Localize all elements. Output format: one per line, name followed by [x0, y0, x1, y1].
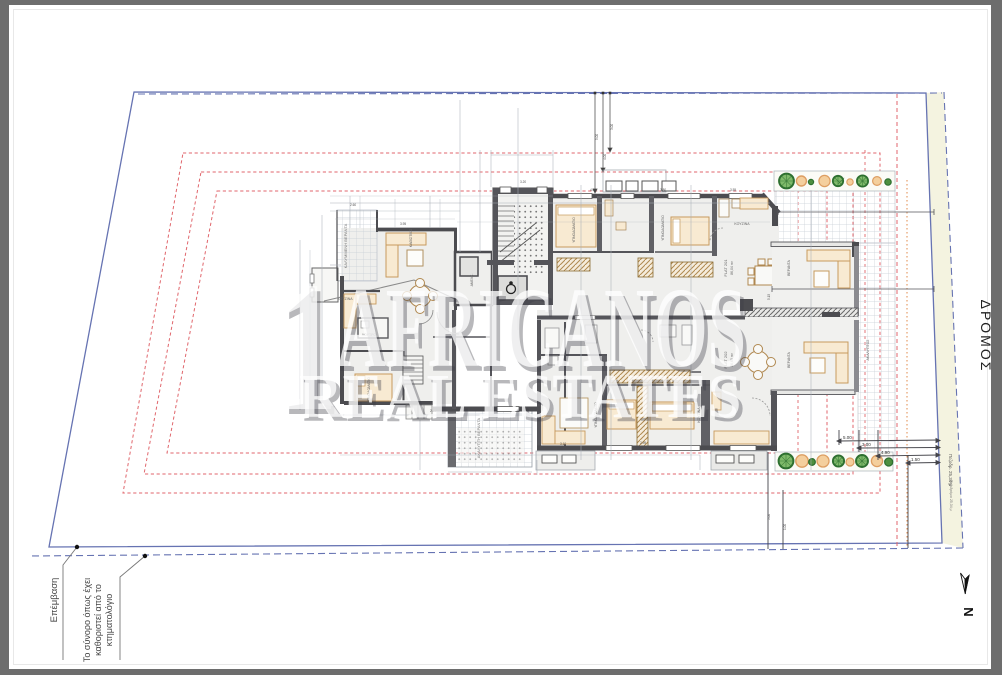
svg-text:REAL ESTATES: REAL ESTATES	[299, 363, 741, 431]
svg-text:3.20: 3.20	[520, 180, 526, 184]
svg-text:3.80: 3.80	[660, 188, 666, 192]
svg-text:5.15: 5.15	[767, 294, 771, 300]
svg-text:ΚΟΥΖΙΝΑ: ΚΟΥΖΙΝΑ	[734, 222, 750, 226]
svg-text:ΑΚΑΛΥΠΤΟΣ: ΑΚΑΛΥΠΤΟΣ	[866, 339, 870, 361]
svg-text:5.00: 5.00	[843, 435, 852, 440]
svg-text:καθοριστεί από το: καθοριστεί από το	[93, 584, 103, 656]
svg-text:3.10: 3.10	[560, 442, 566, 446]
svg-text:κτηματολόγιο: κτηματολόγιο	[104, 594, 114, 647]
svg-text:Πεζοδρ. 25,34 μ: Πεζοδρ. 25,34 μ	[948, 454, 953, 487]
svg-text:4.90: 4.90	[881, 450, 890, 455]
svg-text:1.50: 1.50	[911, 457, 920, 462]
svg-text:Το σύνορο όπως έχει: Το σύνορο όπως έχει	[82, 578, 92, 662]
svg-text:ΒΕΡΑΝΤΑ: ΒΕΡΑΝΤΑ	[787, 351, 791, 367]
svg-text:5.00: 5.00	[595, 134, 599, 140]
svg-text:ΚΑΛΥΜΜΕΝΗ ΒΕΡΑΝΤΑ: ΚΑΛΥΜΜΕΝΗ ΒΕΡΑΝΤΑ	[343, 223, 348, 268]
svg-text:N: N	[961, 607, 976, 616]
svg-text:4.05: 4.05	[590, 188, 596, 192]
svg-text:3.00: 3.00	[862, 442, 871, 447]
svg-text:ΥΠΝΟΔΩΜΑΤΙΟ: ΥΠΝΟΔΩΜΑΤΙΟ	[661, 215, 665, 241]
svg-text:3.00: 3.00	[610, 124, 614, 130]
svg-text:ΚΑΘΙΣΤΙΚΟ: ΚΑΘΙΣΤΙΚΟ	[409, 228, 413, 247]
svg-text:3.55: 3.55	[730, 188, 736, 192]
svg-text:Επέμβαση: Επέμβαση	[49, 578, 60, 623]
svg-text:2.95: 2.95	[640, 441, 646, 445]
svg-text:2.60: 2.60	[350, 203, 356, 207]
svg-text:1.00: 1.00	[783, 524, 787, 530]
svg-text:ΥΠΝΟΔΩΜΑΤΙΟ: ΥΠΝΟΔΩΜΑΤΙΟ	[572, 217, 576, 243]
svg-text:4.00: 4.00	[603, 154, 607, 160]
svg-text:ΒΕΡΑΝΤΑ: ΒΕΡΑΝΤΑ	[787, 259, 791, 275]
svg-text:3.95: 3.95	[400, 222, 406, 226]
svg-text:ΔΡΟΜΟΣ: ΔΡΟΜΟΣ	[978, 300, 994, 373]
